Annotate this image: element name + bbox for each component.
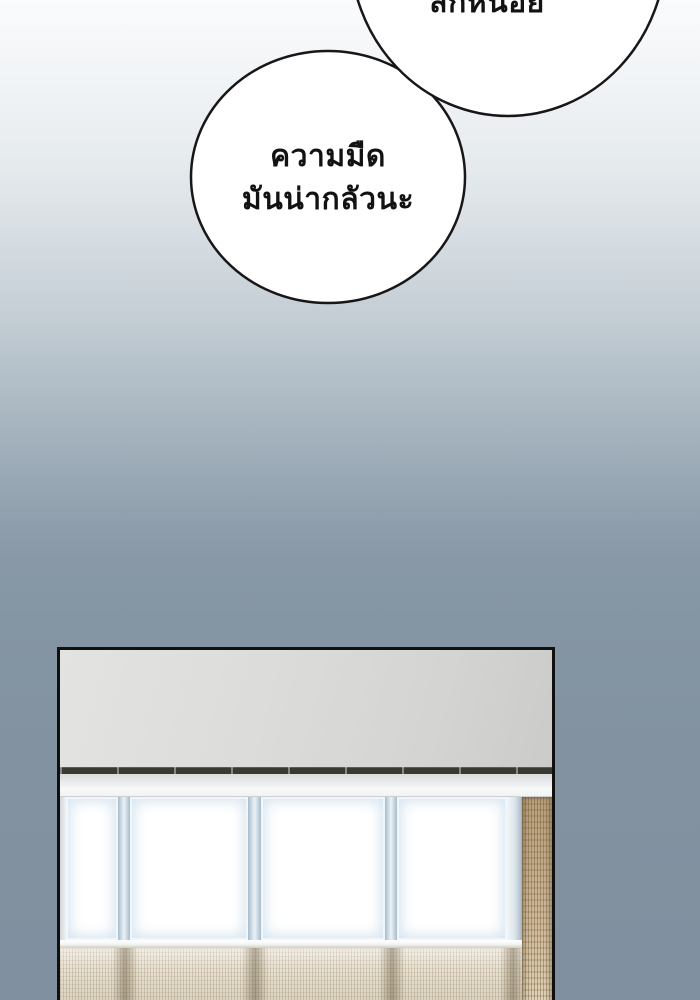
window-pane-2 <box>130 797 248 940</box>
window-pane-4 <box>397 797 507 940</box>
window-mullion-3 <box>385 797 397 940</box>
window-mullion-2 <box>248 797 261 940</box>
bubble-text-top: สักหน่อย <box>377 0 597 23</box>
bubble-text-main: ความมืด มันน่ากลัวนะ <box>193 135 463 221</box>
window-pane-1 <box>66 797 118 940</box>
curtain-shadow-band <box>242 948 268 1000</box>
comic-page: สักหน่อย ความมืด มันน่ากลัวนะ <box>0 0 700 1000</box>
window-row <box>60 797 522 940</box>
bubble-text-main-line2: มันน่ากลัวนะ <box>193 178 463 221</box>
ceiling <box>60 650 552 767</box>
curtain-right-strip <box>522 797 552 1000</box>
comic-panel <box>57 647 555 1000</box>
bubble-text-main-line1: ความมืด <box>193 135 463 178</box>
window-valance <box>60 774 552 797</box>
curtain-shadow-band <box>379 948 405 1000</box>
curtain-rail <box>60 767 552 774</box>
curtain-bottom <box>60 948 552 1000</box>
window-pane-3 <box>261 797 385 940</box>
window-mullion-1 <box>118 797 130 940</box>
curtain-shadow-band <box>112 948 138 1000</box>
window-frame-right <box>507 797 522 940</box>
window-sill <box>60 940 522 948</box>
